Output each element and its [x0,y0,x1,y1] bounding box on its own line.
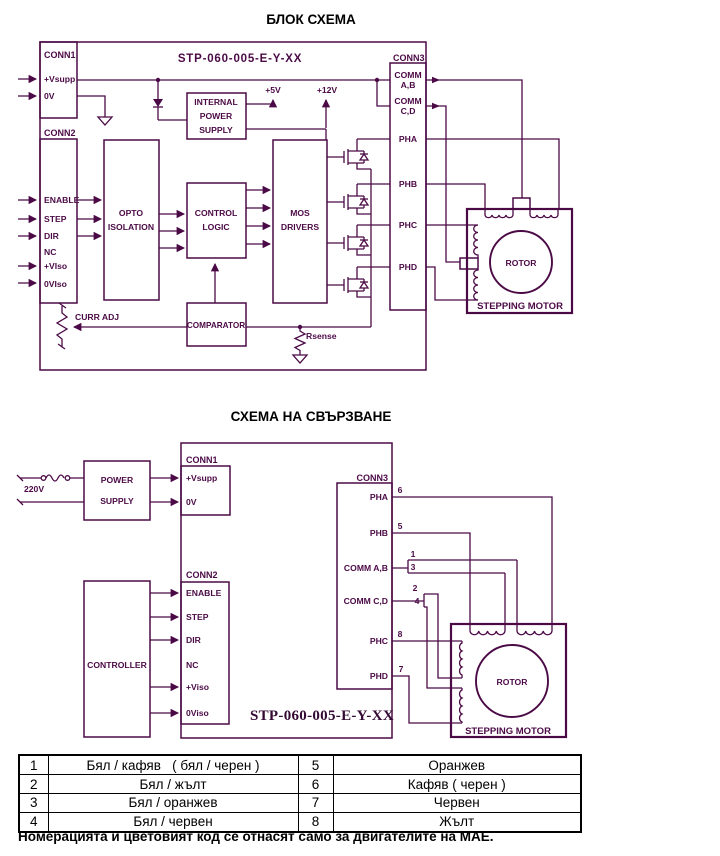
pin-label: PHB [399,179,417,189]
motor-wiring [426,77,559,300]
wire-number: 1 [411,549,416,559]
pin-label: COMM C,D [344,596,388,606]
rsense-resistor-icon [295,327,305,355]
conn3-box [337,483,392,689]
wire-number-cell: 1 [19,755,48,775]
wire-color-cell: Оранжев [333,755,581,775]
coil-icon [517,624,552,635]
coil-icon [474,225,478,258]
pin-label: PHB [370,528,388,538]
fuse-terminal-icon [65,476,70,481]
tap-box [513,198,530,209]
v5-label: +5V [265,85,281,95]
rotor-label: ROTOR [506,258,538,268]
coil-icon [470,624,505,635]
ground-icon [293,355,307,363]
conn2-label: CONN2 [44,128,76,138]
wire-number: 3 [411,562,416,572]
pin-label: DIR [44,231,60,241]
pin-label: DIR [186,635,202,645]
wire-color-cell: Кафяв ( черен ) [333,775,581,794]
wire-number-cell: 3 [19,793,48,812]
wire-number: 6 [398,485,403,495]
motor-wiring [392,497,552,723]
power-supply-box [84,461,150,520]
wire-color-cell: Бял / жълт [48,775,298,794]
wire-number-cell: 5 [298,755,333,775]
block-label: SUPPLY [199,125,233,135]
block-label: POWER [200,111,233,121]
opto-isolation-box [104,140,159,300]
connector-arrows [150,478,178,713]
stepping-motor-label: STEPPING MOTOR [465,726,551,737]
wire-number: 2 [413,583,418,593]
block-label: DRIVERS [281,222,319,232]
pin-label: PHD [399,262,417,272]
pin-label: PHC [399,220,417,230]
coil-icon [460,641,462,678]
wire-color-table: 1 Бял / кафяв ( бял / черен ) 5 Оранжев … [18,754,582,833]
table-row: 1 Бял / кафяв ( бял / черен ) 5 Оранжев [19,755,581,775]
wire-number: 8 [398,629,403,639]
pin-label: STEP [44,214,67,224]
table-row: 3 Бял / оранжев 7 Червен [19,793,581,812]
controller-box [84,581,150,737]
curr-adj-label: CURR ADJ [75,312,119,322]
footnote: Номерацията и цветовият код се отнасят с… [18,829,618,844]
schematic-drawing: БЛОК СХЕМА [0,0,720,856]
block-label: POWER [101,475,134,485]
block-label: ISOLATION [108,222,154,232]
stepping-motor: ROTOR STEPPING MOTOR [460,198,572,313]
block-label: CONTROLLER [87,660,147,670]
pin-label: +Vsupp [186,473,217,483]
wire-number-cell: 6 [298,775,333,794]
coil-icon [530,209,558,218]
pin-label: A,B [401,80,416,90]
block-label: LOGIC [202,222,229,232]
conn2-label: CONN2 [186,570,218,580]
pin-label: PHD [370,671,388,681]
wire-color-cell: Бял / кафяв ( бял / черен ) [48,755,298,775]
schematic-page: БЛОК СХЕМА [0,0,720,856]
curr-adj-pot-icon [57,306,67,347]
stepping-motor: ROTOR STEPPING MOTOR [451,624,566,737]
rotor-label: ROTOR [497,677,529,687]
v12-label: +12V [317,85,338,95]
pin-label: 0VIso [44,279,67,289]
pin-label: PHC [370,636,388,646]
wire-number: 4 [415,596,420,606]
control-logic-box [187,183,246,258]
wiring-diagram: СХЕМА НА СВЪРЗВАНЕ [17,409,566,738]
logic-wiring [77,190,270,303]
pin-label: C,D [401,106,416,116]
pin-label: 0Viso [186,708,209,718]
fuse-icon [46,475,64,481]
pin-label: 0V [186,497,197,507]
block-diagram: БЛОК СХЕМА [18,12,572,370]
block-label: MOS [290,208,310,218]
block-label: SUPPLY [100,496,134,506]
model-label: STP-060-005-E-Y-XX [250,708,394,724]
wire-number-cell: 2 [19,775,48,794]
wire-number: 5 [398,521,403,531]
block-label: COMPARATOR [187,321,245,330]
pin-label: STEP [186,612,209,622]
wire-number: 7 [399,664,404,674]
coil-icon [474,269,478,300]
conn2-box [181,582,229,724]
conn1-label: CONN1 [44,50,76,60]
fuse-terminal-icon [41,476,46,481]
diode-icon [153,99,163,107]
block-label: OPTO [119,208,144,218]
wire-color-cell: Бял / оранжев [48,793,298,812]
supply-wiring [77,78,390,140]
block-label: INTERNAL [194,97,237,107]
pin-label: NC [44,247,56,257]
model-label: STP-060-005-E-Y-XX [178,53,302,65]
input-arrows [18,79,36,283]
pin-label: +Vsupp [44,74,75,84]
wire-number-cell: 7 [298,793,333,812]
pin-label: COMM A,B [344,563,388,573]
coil-icon [485,209,513,218]
pin-label: COMM [394,96,421,106]
rsense-label: Rsense [306,331,337,341]
pin-label: NC [186,660,198,670]
ground-icon [98,117,112,125]
wire-color-cell: Червен [333,793,581,812]
pin-label: ENABLE [186,588,222,598]
stepping-motor-label: STEPPING MOTOR [477,301,563,312]
pin-label: 0V [44,91,55,101]
block-label: CONTROL [195,208,238,218]
block-diagram-title: БЛОК СХЕМА [266,12,356,27]
pin-label: +Viso [186,682,209,692]
conn3-label: CONN3 [393,53,425,63]
table-row: 2 Бял / жълт 6 Кафяв ( черен ) [19,775,581,794]
pin-label: PHA [370,492,388,502]
wiring-diagram-title: СХЕМА НА СВЪРЗВАНЕ [231,409,392,424]
conn1-label: CONN1 [186,455,218,465]
conn3-label: CONN3 [356,473,388,483]
pin-label: ENABLE [44,195,80,205]
pin-label: PHA [399,134,417,144]
coil-icon [460,688,462,723]
pin-label: COMM [394,70,421,80]
pin-label: +VIso [44,261,67,271]
mains-label: 220V [24,484,44,494]
tap-box [460,258,478,269]
